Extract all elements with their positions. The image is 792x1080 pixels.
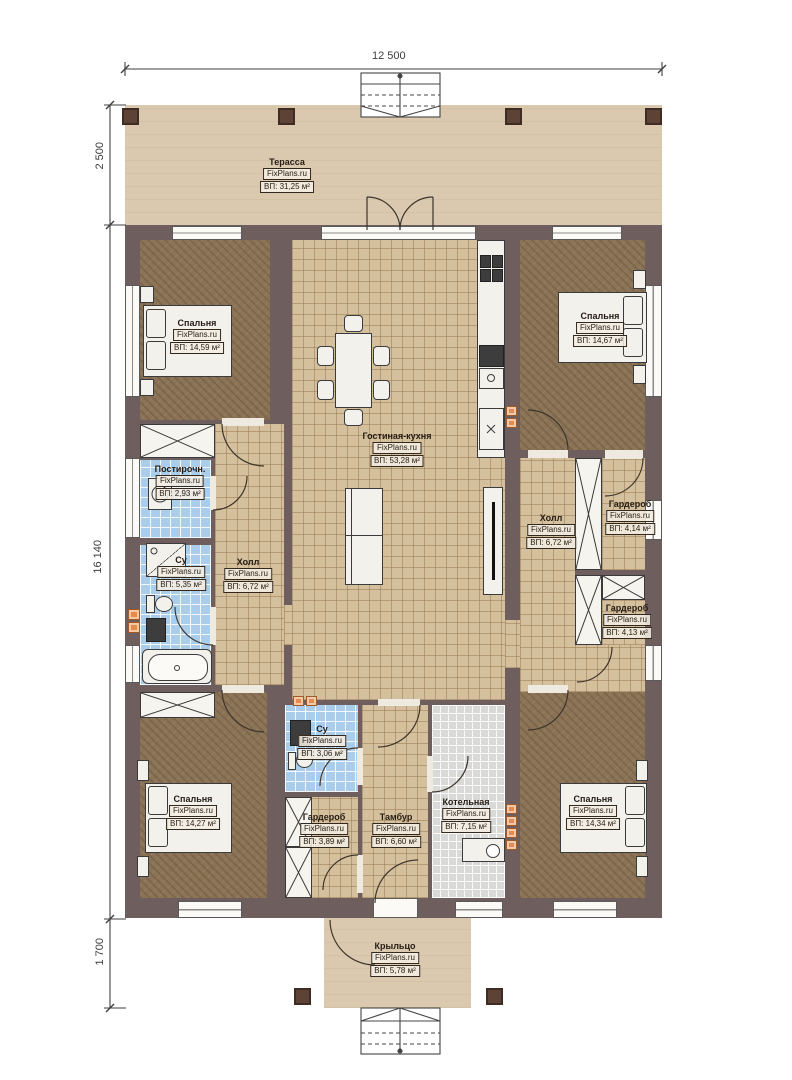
- dimension-terrace-depth: 2 500: [94, 142, 106, 170]
- door-gap: [210, 607, 216, 645]
- closet-x: [140, 692, 215, 718]
- bath-sink: [146, 618, 166, 642]
- watermark: FixPlans.ru: [372, 823, 420, 835]
- chair: [373, 346, 390, 366]
- nightstand: [633, 270, 646, 289]
- window: [125, 645, 140, 683]
- closet-x: [140, 424, 215, 458]
- room-label-bath-main: Су FixPlans.ru ВП: 5,35 м²: [156, 555, 206, 591]
- room-label-terrace: Терасса FixPlans.ru ВП: 31,25 м²: [260, 157, 314, 193]
- watermark: FixPlans.ru: [263, 168, 311, 180]
- watermark: FixPlans.ru: [157, 566, 205, 578]
- pillow: [625, 786, 645, 815]
- kitchen-sink: [479, 368, 504, 389]
- window: [178, 901, 242, 918]
- area-value: ВП: 14,34 м²: [566, 818, 620, 830]
- terrace-post: [122, 108, 139, 125]
- living-kitchen-floor: [292, 240, 505, 700]
- watermark: FixPlans.ru: [371, 952, 419, 964]
- closet-x: [285, 847, 312, 898]
- watermark: FixPlans.ru: [606, 510, 654, 522]
- living-hall-left-opening: [284, 605, 292, 645]
- nightstand: [636, 760, 648, 781]
- area-value: ВП: 2,93 м²: [155, 488, 205, 500]
- watermark: FixPlans.ru: [442, 808, 490, 820]
- area-value: ВП: 14,59 м²: [170, 342, 224, 354]
- area-value: ВП: 6,72 м²: [526, 537, 576, 549]
- area-value: ВП: 5,78 м²: [370, 965, 420, 977]
- room-label-bath-small: Су FixPlans.ru ВП: 3,06 м²: [297, 724, 347, 760]
- window: [645, 645, 662, 681]
- area-value: ВП: 31,25 м²: [260, 181, 314, 193]
- porch-post: [486, 988, 503, 1005]
- door-gap: [222, 685, 264, 693]
- sofa: [345, 488, 383, 585]
- pillow: [625, 818, 645, 847]
- area-value: ВП: 14,67 м²: [573, 335, 627, 347]
- watermark: FixPlans.ru: [569, 805, 617, 817]
- terrace-floor: [125, 105, 662, 226]
- watermark: FixPlans.ru: [603, 614, 651, 626]
- nightstand: [633, 365, 646, 384]
- door-gap: [528, 685, 568, 693]
- closet-x: [602, 575, 645, 600]
- stove-burner-icon: [480, 255, 491, 268]
- watermark: FixPlans.ru: [156, 475, 204, 487]
- closet-x: [575, 458, 602, 570]
- terrace-post: [645, 108, 662, 125]
- entry-door: [373, 898, 418, 918]
- radiator-marker: [506, 804, 517, 814]
- stairs-bottom: [361, 1008, 440, 1054]
- radiator-marker: [128, 609, 140, 620]
- window: [172, 226, 242, 240]
- room-label-bedroom-tr: Спальня FixPlans.ru ВП: 14,67 м²: [573, 311, 627, 347]
- dimension-porch-depth: 1 700: [94, 938, 106, 966]
- door-gap: [222, 418, 264, 426]
- terrace-post: [505, 108, 522, 125]
- room-label-living: Гостиная-кухня FixPlans.ru ВП: 53,28 м²: [363, 431, 432, 467]
- chair: [317, 346, 334, 366]
- nightstand: [137, 760, 149, 781]
- radiator-marker: [506, 816, 517, 826]
- room-label-bedroom-tl: Спальня FixPlans.ru ВП: 14,59 м²: [170, 318, 224, 354]
- room-label-wardrobe-bottom: Гардероб FixPlans.ru ВП: 3,89 м²: [299, 812, 349, 848]
- watermark: FixPlans.ru: [300, 823, 348, 835]
- room-label-wardrobe-rt: Гардероб FixPlans.ru ВП: 4,14 м²: [605, 499, 655, 535]
- closet-x: [575, 575, 602, 645]
- floor-plan: 12 500 2 500 16 140 1 700: [0, 0, 792, 1080]
- pillow: [146, 341, 166, 370]
- room-label-hall-right: Холл FixPlans.ru ВП: 6,72 м²: [526, 513, 576, 549]
- bathtub-basin: [148, 654, 208, 681]
- living-hall-right-opening: [505, 620, 520, 668]
- watermark: FixPlans.ru: [527, 524, 575, 536]
- area-value: ВП: 6,60 м²: [371, 836, 421, 848]
- dining-table: [335, 333, 372, 408]
- room-label-laundry: Постирочн. FixPlans.ru ВП: 2,93 м²: [155, 464, 206, 500]
- door-gap: [605, 450, 643, 459]
- area-value: ВП: 3,06 м²: [297, 748, 347, 760]
- radiator-marker: [306, 696, 317, 706]
- chair: [344, 409, 363, 426]
- watermark: FixPlans.ru: [173, 329, 221, 341]
- toilet: [146, 595, 155, 613]
- nightstand: [140, 379, 154, 396]
- radiator-marker: [506, 406, 517, 416]
- stove-burner-icon: [480, 269, 491, 282]
- tv-icon: [492, 502, 495, 580]
- area-value: ВП: 5,35 м²: [156, 579, 206, 591]
- room-label-porch: Крыльцо FixPlans.ru ВП: 5,78 м²: [370, 941, 420, 977]
- area-value: ВП: 3,89 м²: [299, 836, 349, 848]
- radiator-marker: [506, 418, 517, 428]
- window: [125, 458, 140, 538]
- window: [553, 901, 617, 918]
- nightstand: [137, 856, 149, 877]
- chair: [317, 380, 334, 400]
- watermark: FixPlans.ru: [224, 568, 272, 580]
- room-label-vestibule: Тамбур FixPlans.ru ВП: 6,60 м²: [371, 812, 421, 848]
- watermark: FixPlans.ru: [169, 805, 217, 817]
- door-gap: [528, 450, 568, 458]
- terrace-post: [278, 108, 295, 125]
- hall-right-floor-lower: [575, 645, 645, 692]
- window: [455, 901, 503, 918]
- radiator-marker: [293, 696, 304, 706]
- watermark: FixPlans.ru: [373, 442, 421, 454]
- area-value: ВП: 4,13 м²: [602, 627, 652, 639]
- room-label-bedroom-br: Спальня FixPlans.ru ВП: 14,34 м²: [566, 794, 620, 830]
- door-gap: [378, 699, 420, 706]
- area-value: ВП: 6,72 м²: [223, 581, 273, 593]
- dimension-total-width: 12 500: [372, 50, 406, 62]
- room-label-boiler: Котельная FixPlans.ru ВП: 7,15 м²: [441, 797, 491, 833]
- pillow: [148, 818, 168, 847]
- radiator-marker: [506, 828, 517, 838]
- vestibule-floor: [362, 705, 428, 898]
- area-value: ВП: 14,27 м²: [166, 818, 220, 830]
- toilet-bowl: [155, 596, 173, 612]
- door-gap: [210, 476, 216, 510]
- radiator-marker: [506, 840, 517, 850]
- nightstand: [636, 856, 648, 877]
- kitchen-hob-block: [479, 345, 504, 367]
- pillow: [148, 786, 168, 815]
- watermark: FixPlans.ru: [298, 735, 346, 747]
- hall-left-floor: [215, 424, 284, 685]
- radiator-marker: [128, 622, 140, 633]
- boiler-dial-icon: [486, 844, 500, 858]
- toilet: [288, 752, 296, 770]
- door-gap: [357, 748, 363, 785]
- area-value: ВП: 7,15 м²: [441, 821, 491, 833]
- fridge: [479, 408, 504, 450]
- terrace-glazing: [321, 226, 476, 240]
- watermark: FixPlans.ru: [576, 322, 624, 334]
- chair: [344, 315, 363, 332]
- room-label-hall-left: Холл FixPlans.ru ВП: 6,72 м²: [223, 557, 273, 593]
- hall-right-floor: [520, 458, 575, 692]
- window: [125, 285, 140, 397]
- pillow: [146, 309, 166, 338]
- door-gap: [427, 756, 433, 792]
- stove-burner-icon: [492, 255, 503, 268]
- chair: [373, 380, 390, 400]
- room-label-bedroom-bl: Спальня FixPlans.ru ВП: 14,27 м²: [166, 794, 220, 830]
- stove-burner-icon: [492, 269, 503, 282]
- room-label-wardrobe-rb: Гардероб FixPlans.ru ВП: 4,13 м²: [602, 603, 652, 639]
- door-gap: [357, 855, 363, 893]
- area-value: ВП: 4,14 м²: [605, 523, 655, 535]
- window: [552, 226, 622, 240]
- dimension-house-depth: 16 140: [92, 540, 104, 574]
- area-value: ВП: 53,28 м²: [370, 455, 424, 467]
- porch-post: [294, 988, 311, 1005]
- nightstand: [140, 286, 154, 303]
- window: [645, 285, 662, 397]
